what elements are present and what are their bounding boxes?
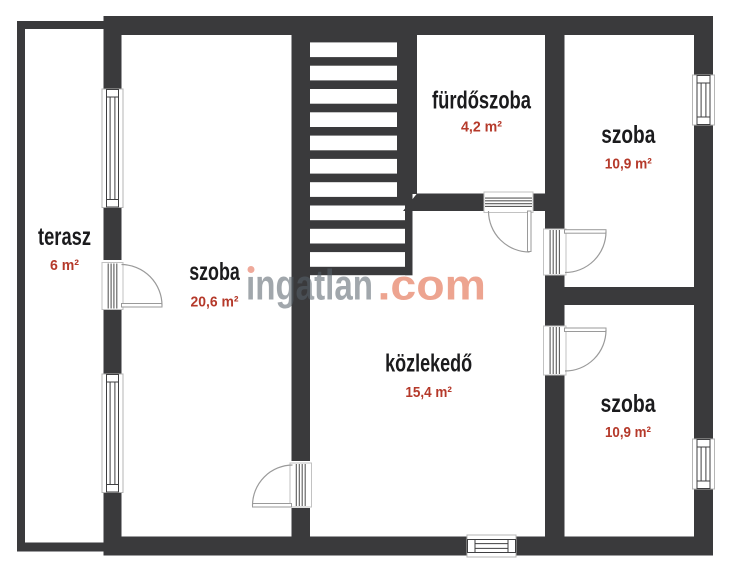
svg-text:10,9 m²: 10,9 m²	[605, 156, 652, 173]
svg-text:4,2 m²: 4,2 m²	[461, 119, 502, 136]
svg-text:szoba: szoba	[601, 390, 657, 418]
svg-text:15,4 m²: 15,4 m²	[405, 384, 452, 401]
svg-text:.com: .com	[378, 262, 487, 310]
svg-text:ıngatlan: ıngatlan	[246, 262, 373, 310]
svg-text:közlekedő: közlekedő	[385, 350, 472, 378]
svg-text:szoba: szoba	[189, 258, 240, 286]
svg-text:fürdőszoba: fürdőszoba	[432, 87, 532, 115]
svg-text:terasz: terasz	[38, 223, 91, 251]
svg-text:20,6 m²: 20,6 m²	[191, 294, 239, 311]
svg-text:6 m²: 6 m²	[50, 257, 79, 274]
svg-text:10,9 m²: 10,9 m²	[605, 424, 651, 441]
svg-text:szoba: szoba	[601, 121, 656, 149]
